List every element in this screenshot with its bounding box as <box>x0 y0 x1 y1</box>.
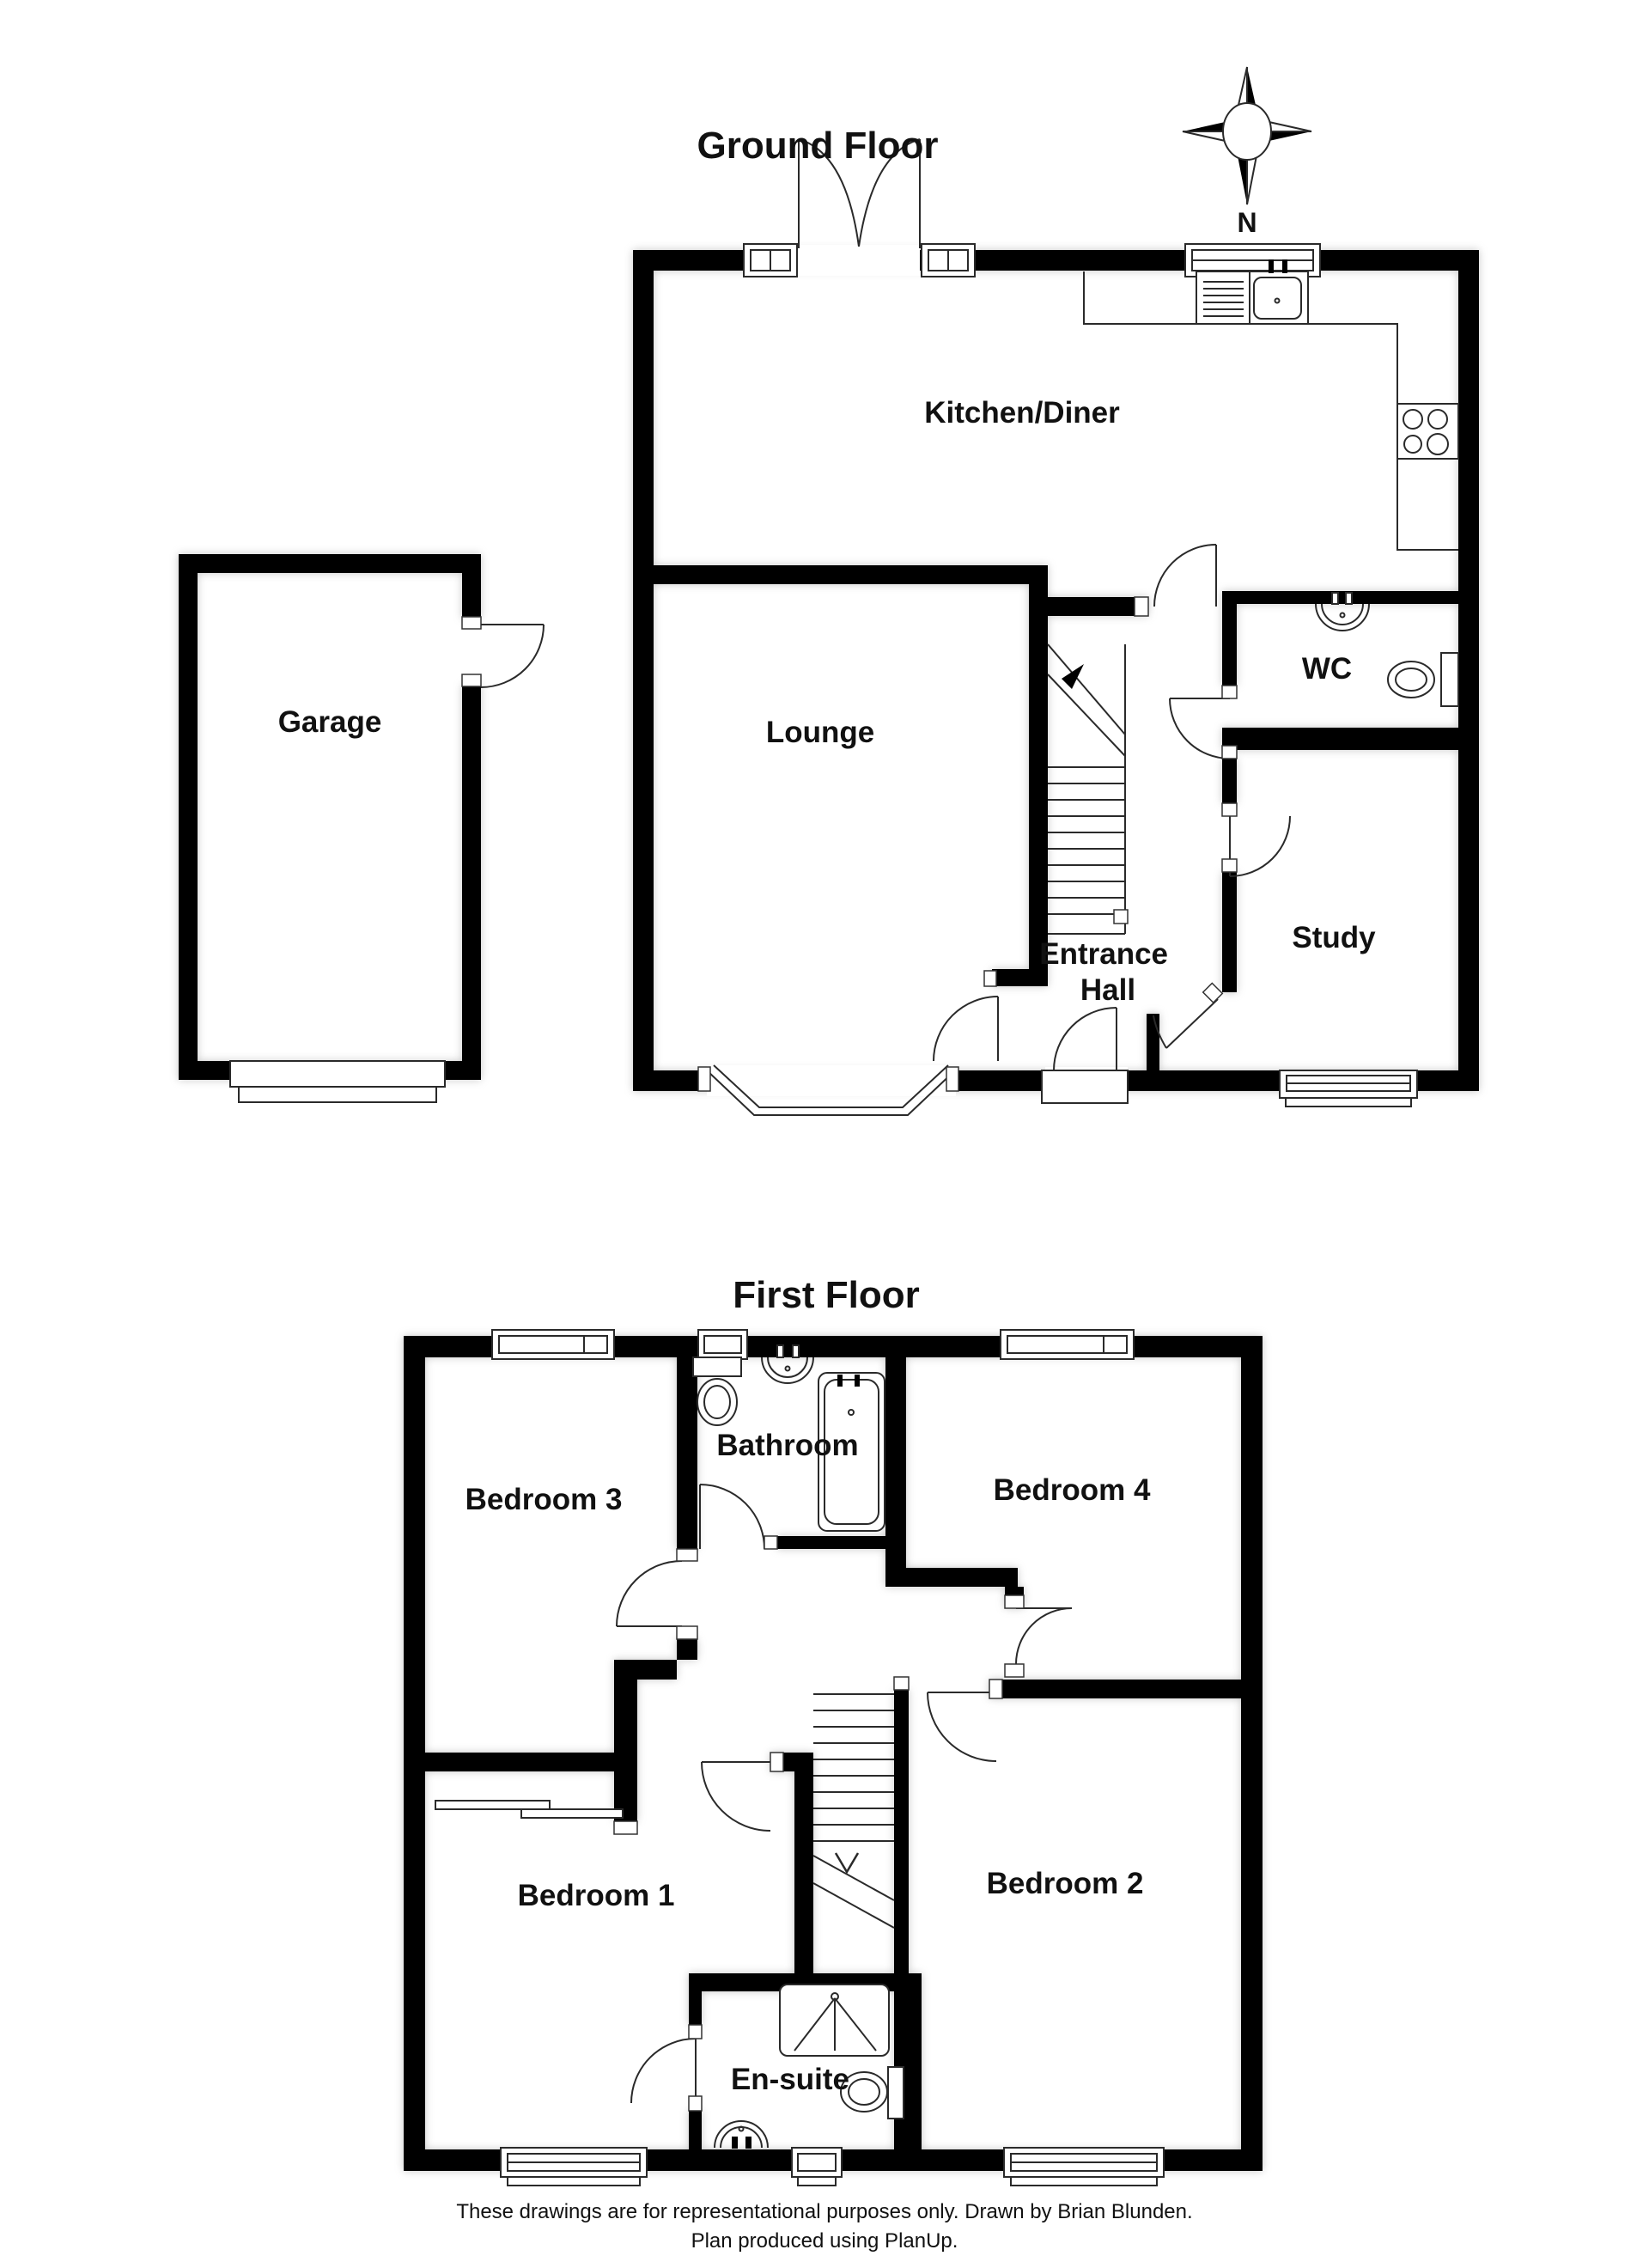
floor-plan-drawing: N <box>0 0 1649 2268</box>
bedroom1-window <box>501 2148 647 2186</box>
study-door <box>1230 816 1290 876</box>
garage-door <box>230 1061 445 1102</box>
stairs <box>1048 644 1128 934</box>
bedroom1-door <box>702 1762 770 1831</box>
ensuite-window <box>792 2148 842 2186</box>
door-jambs <box>984 597 1237 986</box>
compass-icon <box>1183 67 1311 204</box>
ensuite-door <box>631 2039 696 2103</box>
bedroom1-label: Bedroom 1 <box>518 1879 675 1912</box>
footer-disclaimer: These drawings are for representational … <box>456 2200 1192 2223</box>
bedroom3-window <box>492 1330 614 1359</box>
floor-plan-page: N <box>0 0 1649 2268</box>
bedroom2-door <box>928 1692 996 1761</box>
wc-door <box>1170 698 1230 759</box>
shower-icon <box>780 1984 889 2056</box>
bedroom3-door <box>617 1561 682 1626</box>
kitchen-diner-label: Kitchen/Diner <box>924 396 1120 430</box>
garage-label: Garage <box>278 705 382 739</box>
walls <box>179 250 1479 2171</box>
compass-north-label: N <box>1237 207 1257 238</box>
entrance-hall-line2: Hall <box>1080 973 1135 1007</box>
inner-lobby-door <box>1153 983 1222 1048</box>
kitchen-door <box>1154 545 1216 607</box>
bathroom-door <box>700 1485 764 1549</box>
wc-toilet-icon <box>1388 653 1458 706</box>
bedroom2-window <box>1004 2148 1164 2186</box>
wc-label: WC <box>1302 652 1352 686</box>
lounge-label: Lounge <box>766 716 874 749</box>
bedroom3-label: Bedroom 3 <box>465 1483 623 1516</box>
wall-openings <box>459 245 1128 1096</box>
bedroom4-door <box>1016 1608 1072 1664</box>
footer-credit: Plan produced using PlanUp. <box>691 2229 958 2253</box>
entrance-hall-line1: Entrance <box>1039 937 1168 971</box>
stairs <box>813 1694 894 1928</box>
entrance-hall-label: Entrance Hall <box>1039 937 1177 1007</box>
front-door <box>1042 1008 1128 1103</box>
bathroom-window <box>698 1330 747 1359</box>
lounge-door <box>934 997 998 1061</box>
window <box>744 244 797 277</box>
wall-shading <box>179 250 1479 2171</box>
study-label: Study <box>1292 921 1376 954</box>
window <box>922 244 975 277</box>
ensuite-sink-icon <box>715 2121 768 2149</box>
wardrobe <box>435 1801 623 1818</box>
hob-icon <box>1397 404 1458 459</box>
bedroom2-label: Bedroom 2 <box>987 1867 1144 1900</box>
ensuite-toilet-icon <box>841 2067 904 2119</box>
first-floor-title: First Floor <box>733 1274 920 1316</box>
bathroom-toilet-icon <box>693 1357 741 1425</box>
bedroom4-window <box>1001 1330 1134 1359</box>
study-window <box>1280 1070 1417 1107</box>
bedroom4-label: Bedroom 4 <box>994 1473 1151 1507</box>
ground-floor-title: Ground Floor <box>697 125 938 167</box>
ensuite-label: En-suite <box>731 2063 849 2096</box>
bathroom-label: Bathroom <box>716 1429 858 1462</box>
